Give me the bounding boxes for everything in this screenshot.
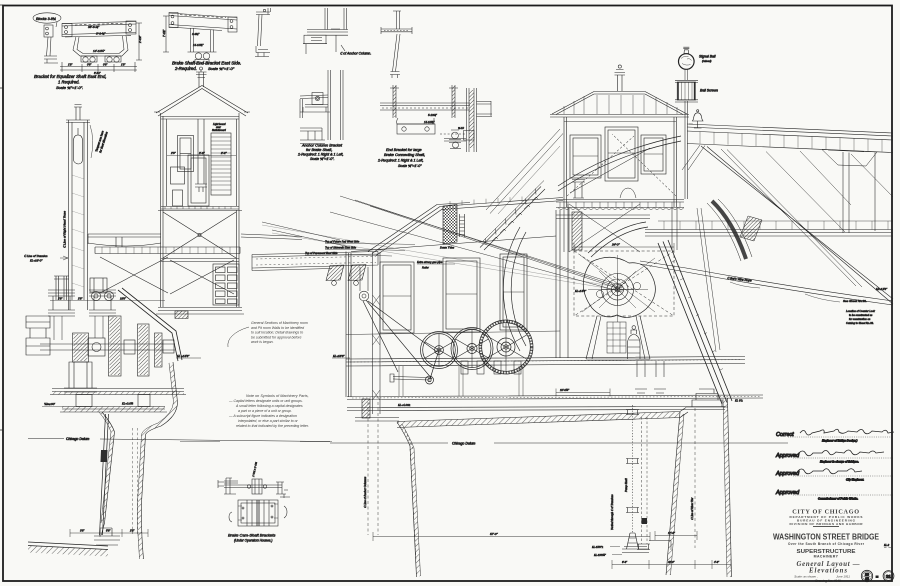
svg-text:42'-0": 42'-0" — [668, 561, 674, 564]
svg-text:Anchor Column Bracket: Anchor Column Bracket — [301, 144, 343, 148]
svg-text:57'-0": 57'-0" — [490, 532, 499, 536]
svg-text:Note on Symbols of Machinery P: Note on Symbols of Machinery Parts, — [246, 394, 309, 398]
svg-text:El.+16'6": El.+16'6" — [333, 354, 345, 358]
svg-text:25: 25 — [865, 577, 869, 581]
svg-text:Blocks 3-8¼: Blocks 3-8¼ — [36, 17, 56, 21]
svg-text:2-Required.: 2-Required. — [174, 66, 197, 71]
svg-text:El.+0.0½: El.+0.0½ — [122, 402, 134, 406]
svg-text:Correct: Correct — [776, 432, 794, 438]
svg-text:Down T'dse: Down T'dse — [440, 246, 455, 250]
svg-text:Brake Shaft End Bracket East S: Brake Shaft End Bracket East Side. — [172, 61, 241, 66]
svg-text:Catalog to Sheet No.33.: Catalog to Sheet No.33. — [846, 321, 874, 325]
svg-text:June 1911: June 1911 — [836, 574, 850, 578]
svg-text:'Elev.00': 'Elev.00' — [44, 402, 55, 406]
svg-text:El.-2: El.-2 — [884, 544, 890, 547]
svg-text:Chicago Datum: Chicago Datum — [66, 437, 90, 441]
svg-text:2-Required: 1 Right & 1 Left,: 2-Required: 1 Right & 1 Left, — [297, 153, 344, 157]
svg-text:14-10⅞": 14-10⅞" — [193, 43, 204, 47]
svg-text:El. +14'6": El. +14'6" — [177, 354, 190, 358]
svg-text:End Bracket for large: End Bracket for large — [386, 148, 422, 152]
svg-text:Chicago Datum: Chicago Datum — [452, 442, 476, 446]
svg-text:Engineer of Bridge Design.): Engineer of Bridge Design.) — [822, 439, 858, 443]
svg-text:Approved: Approved — [775, 453, 800, 459]
svg-text:2'-4¾": 2'-4¾" — [138, 35, 142, 44]
svg-text:Vertical through ℂ of Trunnion: Vertical through ℂ of Trunnions — [610, 494, 614, 530]
svg-text:6'-6": 6'-6" — [622, 561, 627, 564]
svg-text:(raised): (raised) — [702, 59, 712, 63]
svg-text:Scale: as shown ,: Scale: as shown , — [794, 574, 818, 578]
svg-text:¾-10: ¾-10 — [458, 126, 464, 130]
svg-text:10'-0½": 10'-0½" — [560, 388, 570, 392]
svg-text:Brake Connecting Shaft,: Brake Connecting Shaft, — [384, 153, 425, 157]
svg-text:Scale ¾"=1'-0".: Scale ¾"=1'-0". — [310, 157, 335, 161]
svg-text:A small letter following a cap: A small letter following a capital desig… — [235, 404, 303, 408]
svg-text:ℂ Line of River Pier: ℂ Line of River Pier — [690, 497, 694, 520]
svg-text:Commissioner of Public Works.: Commissioner of Public Works. — [818, 497, 858, 501]
svg-text:work is begun.: work is begun. — [251, 340, 274, 344]
svg-text:36'-6-⅛": 36'-6-⅛" — [88, 25, 100, 29]
svg-text:See Sheet No.33.: See Sheet No.33. — [843, 299, 867, 303]
svg-text:Scale ¾"=1'-0".: Scale ¾"=1'-0". — [56, 85, 83, 90]
svg-text:2'-2": 2'-2" — [220, 151, 228, 155]
svg-text:and Pit room Walls to be ident: and Pit room Walls to be identified — [251, 326, 305, 330]
svg-text:ℂ Line of Anchor Columns: ℂ Line of Anchor Columns — [363, 476, 367, 508]
svg-text:14'-10½": 14'-10½" — [93, 49, 106, 53]
svg-text:2-Required: 1 Right & 1 Left,: 2-Required: 1 Right & 1 Left, — [377, 159, 424, 163]
svg-text:7'-4⅞": 7'-4⅞" — [162, 29, 166, 37]
svg-text:Roller: Roller — [422, 266, 429, 270]
svg-text:to be constructed as: to be constructed as — [849, 313, 873, 317]
svg-text:El.+4.00±: El.+4.00± — [398, 403, 411, 407]
svg-text:MACHINERY: MACHINERY — [814, 555, 839, 559]
svg-text:3'-3-⅛": 3'-3-⅛" — [96, 32, 106, 36]
svg-text:Engineer in charge of Bridges.: Engineer in charge of Bridges. — [820, 460, 859, 464]
svg-text:24'-0": 24'-0" — [611, 243, 621, 247]
svg-text:DIVISION OF BRIDGES AND HARBOR: DIVISION OF BRIDGES AND HARBOR — [790, 522, 864, 526]
svg-text:Over the South Branch of Chica: Over the South Branch of Chicago River — [788, 542, 865, 546]
svg-text:Drawing No. 4049: Drawing No. 4049 — [815, 579, 841, 583]
svg-text:17'-6": 17'-6" — [668, 531, 676, 535]
svg-text:Location of Counter Lock: Location of Counter Lock — [846, 309, 876, 313]
svg-text:(Under Operators Houses.): (Under Operators Houses.) — [234, 539, 272, 543]
svg-text:ℂ Line of Trunnion: ℂ Line of Trunnion — [24, 254, 48, 258]
svg-text:for Brake Shaft,: for Brake Shaft, — [306, 148, 332, 152]
svg-text:General Sections of Machinery: General Sections of Machinery room — [251, 321, 308, 325]
svg-text:Scale ¾"=1'-0": Scale ¾"=1'-0" — [398, 164, 422, 168]
svg-text:Bracket for Equalizer Shaft Ea: Bracket for Equalizer Shaft East End, — [34, 74, 106, 79]
svg-text:5-10⅛": 5-10⅛" — [428, 113, 438, 117]
svg-text:to suit location; Detail drawi: to suit location; Detail drawings to — [251, 331, 303, 335]
svg-text:interpolated, or else a part s: interpolated, or else a part similar to … — [238, 419, 299, 423]
svg-text:Pump Shaft: Pump Shaft — [624, 478, 628, 492]
svg-text:ℂ of Anchor Column.: ℂ of Anchor Column. — [340, 52, 371, 56]
svg-text:for construction on: for construction on — [849, 317, 871, 321]
svg-text:4'-6": 4'-6" — [714, 561, 719, 564]
svg-text:Brake Cam-Shaft Brackets: Brake Cam-Shaft Brackets — [228, 533, 275, 538]
svg-text:— Capital letters designate un: — Capital letters designate units or uni… — [228, 399, 303, 403]
svg-text:related to that indicated by t: related to that indicated by the precedi… — [236, 424, 309, 428]
svg-text:23: 23 — [865, 573, 869, 577]
svg-text:WASHINGTON STREET BRIDGE: WASHINGTON STREET BRIDGE — [773, 533, 879, 542]
svg-text:be submitted for approval befo: be submitted for approval before — [251, 335, 301, 339]
svg-text:City Engineer.: City Engineer. — [846, 478, 864, 482]
svg-text:Ball Screen: Ball Screen — [700, 89, 718, 93]
svg-text:Approved: Approved — [775, 471, 800, 477]
svg-text:31: 31 — [886, 574, 891, 579]
svg-text:Approved: Approved — [775, 490, 800, 496]
svg-text:El.-15'6"±: El.-15'6"± — [592, 545, 604, 549]
svg-text:14-10⅞": 14-10⅞" — [424, 120, 435, 124]
svg-text:El.+14'6": El.+14'6" — [575, 289, 587, 293]
svg-text:El.+16'-0": El.+16'-0" — [30, 259, 43, 263]
svg-text:El. 8'±: El. 8'± — [735, 399, 743, 403]
svg-text:a part or a piece of a unit or: a part or a piece of a unit or group. — [238, 409, 292, 413]
svg-text:Switchboard: Switchboard — [212, 129, 226, 132]
svg-text:— A subscript figure indicates: — A subscript figure indicates a designa… — [228, 414, 297, 418]
svg-text:ℂ Line of Right Hand Truss: ℂ Line of Right Hand Truss — [63, 211, 67, 248]
svg-text:1 Required.: 1 Required. — [58, 80, 80, 85]
svg-text:El.-19'0½": El.-19'0½" — [594, 553, 607, 557]
svg-text:El:+14'6": El:+14'6" — [876, 287, 888, 291]
svg-text:3-3⅛": 3-3⅛" — [192, 32, 200, 36]
svg-text:Scale ¾"=1'-0": Scale ¾"=1'-0" — [208, 66, 235, 71]
